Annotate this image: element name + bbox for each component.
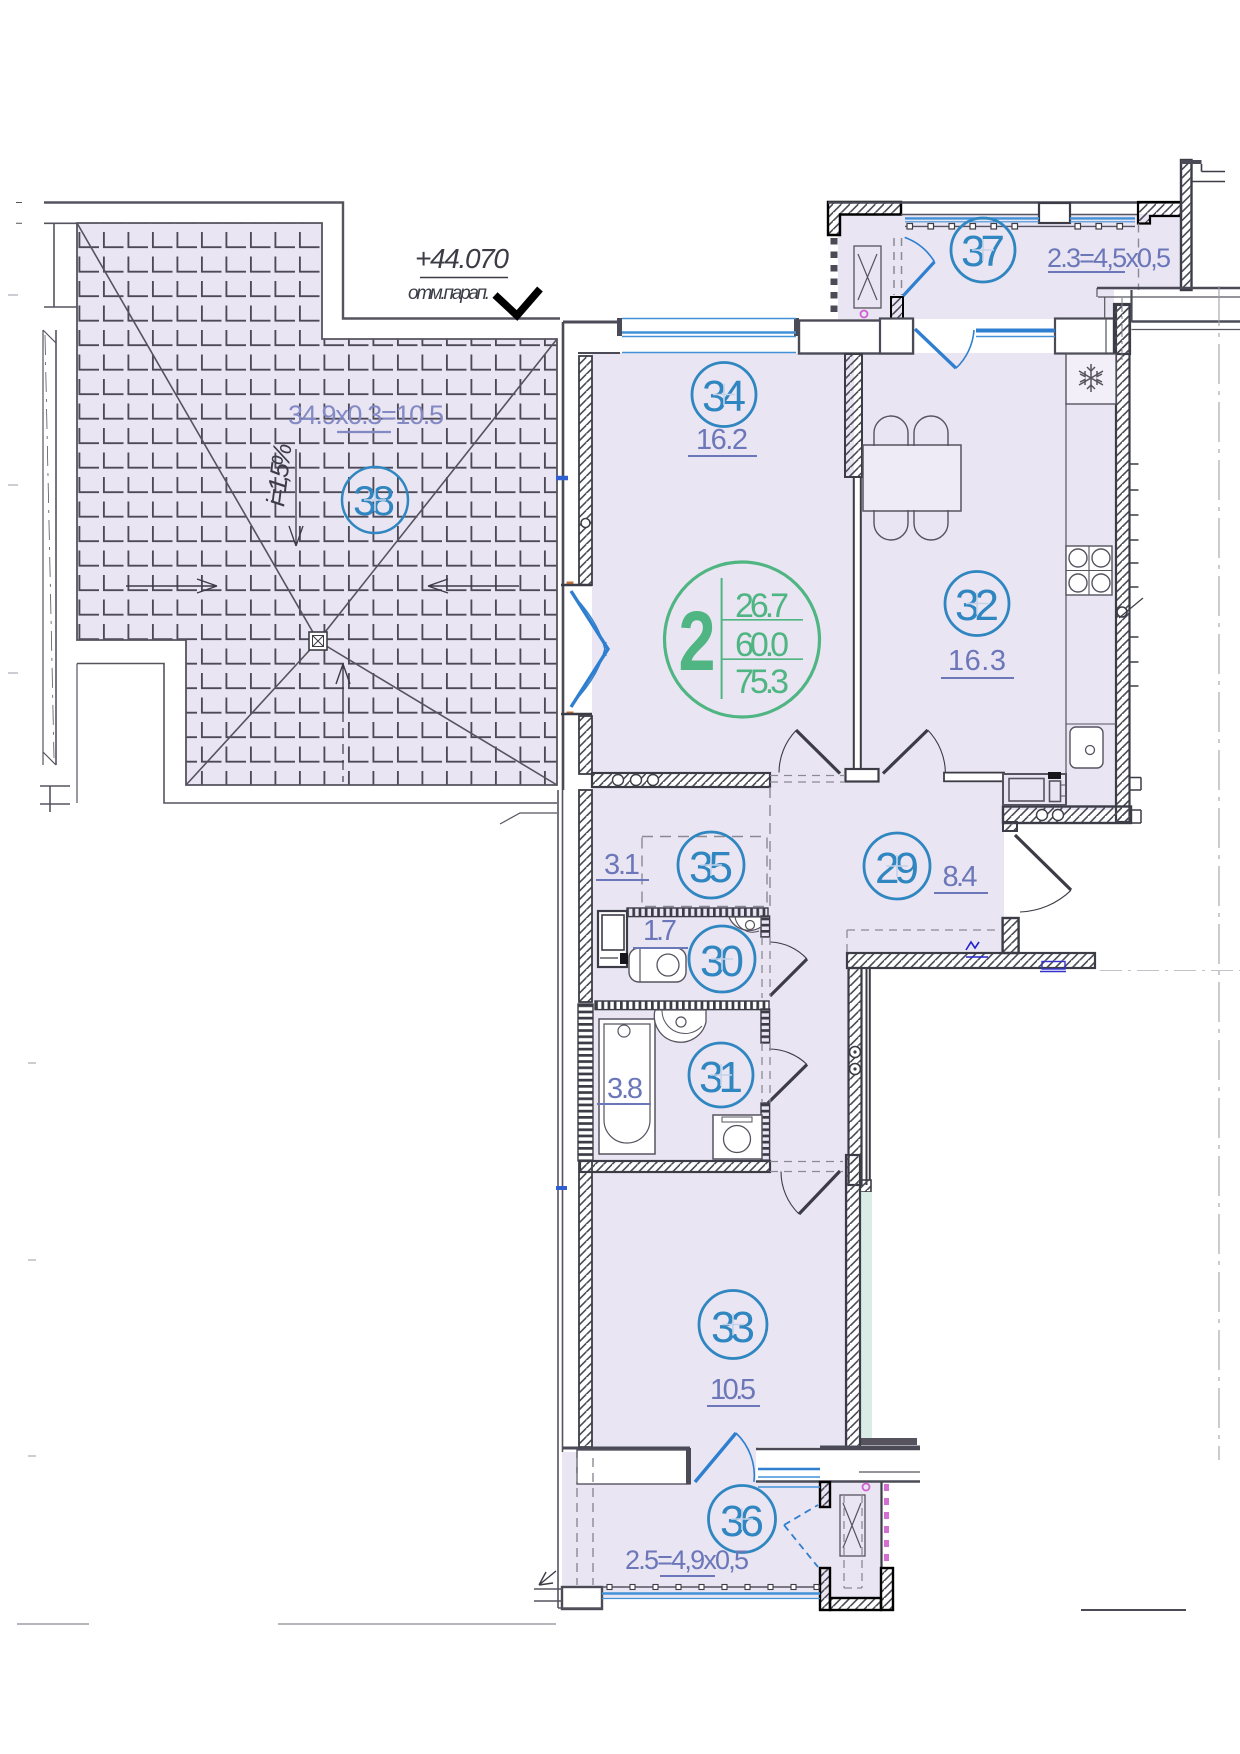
svg-text:3.1: 3.1	[604, 849, 640, 881]
svg-text:2.5=4,9x0,5: 2.5=4,9x0,5	[625, 1545, 749, 1575]
svg-text:16.2: 16.2	[696, 424, 748, 456]
svg-text:2: 2	[679, 594, 716, 688]
svg-text:10.5: 10.5	[710, 1374, 756, 1406]
svg-text:34.9x0.3=10.5: 34.9x0.3=10.5	[288, 400, 444, 430]
svg-text:16.3: 16.3	[948, 645, 1006, 677]
svg-text:2.3=4,5x0,5: 2.3=4,5x0,5	[1047, 243, 1171, 273]
svg-text:1.7: 1.7	[643, 915, 677, 947]
svg-text:3.8: 3.8	[607, 1073, 643, 1105]
svg-text:отм.парап.: отм.парап.	[408, 283, 490, 304]
svg-text:+44.070: +44.070	[415, 243, 509, 274]
svg-text:60.0: 60.0	[735, 626, 789, 664]
svg-text:26.7: 26.7	[735, 587, 789, 625]
svg-text:75.3: 75.3	[735, 663, 789, 701]
svg-text:8.4: 8.4	[943, 861, 978, 893]
